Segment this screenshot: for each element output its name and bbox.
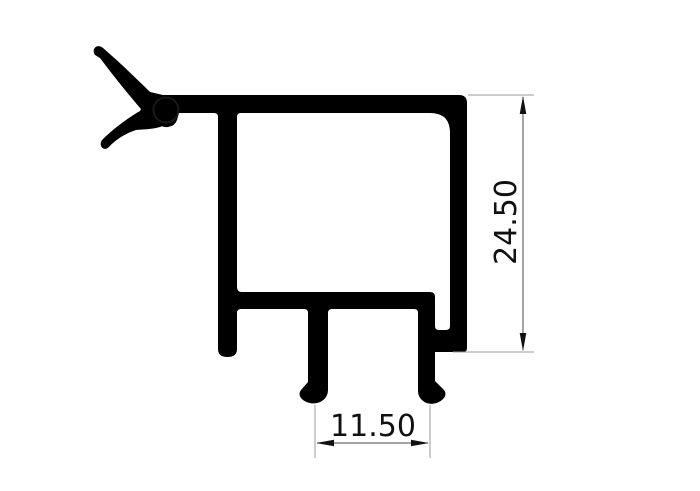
profile-drawing-svg: 24.50 11.50 xyxy=(0,0,700,491)
horizontal-dim-label: 11.50 xyxy=(330,409,416,444)
drawing-canvas: 24.50 11.50 xyxy=(0,0,700,491)
vertical-dim-label: 24.50 xyxy=(489,179,524,265)
